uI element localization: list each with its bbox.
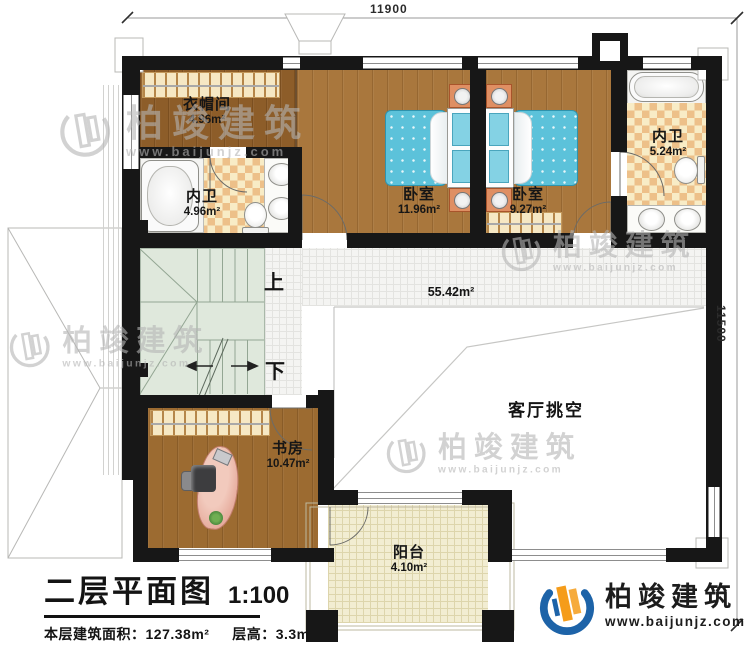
wall [271,548,334,562]
window [512,549,666,561]
partition-line [295,70,297,147]
room-area: 5.24m² [650,146,686,160]
wall-pier [140,363,148,377]
window-sill-hatch [103,85,120,475]
window [363,57,462,69]
title-row: 二层平面图 1:100 [44,566,364,611]
room-label-cloakroom: 衣帽间 4.96m² [183,96,231,128]
room-name: 卧室 [510,186,546,204]
window [643,57,691,69]
room-area: 4.96m² [184,206,220,220]
wall [140,395,272,408]
room-area: 10.47m² [267,458,310,472]
window [478,57,578,69]
wall [462,490,492,505]
floor-area-value: 127.38m² [146,626,210,642]
wall [306,395,334,408]
room-label-bath-right: 内卫 5.24m² [650,128,686,160]
wall-pier [140,220,148,234]
room-label-bath-left: 内卫 4.96m² [184,188,220,220]
title-block: 二层平面图 1:100 本层建筑面积：127.38m² 层高：3.3m [44,566,364,644]
room-label-living-void: 客厅挑空 [508,396,584,421]
room-area: 9.27m² [510,204,546,218]
window [708,487,720,537]
window [123,95,139,169]
room-label-balcony: 阳台 4.10m² [391,544,427,576]
room-name: 内卫 [650,128,686,146]
room-area: 4.10m² [391,562,427,576]
wall [140,147,210,158]
hall-area-label: 55.42m² [428,285,475,299]
title-underline [44,615,260,618]
brand-logo: 柏竣建筑 www.baijunjz.com [538,577,746,635]
wall [288,233,302,248]
window [283,57,300,69]
room-label-bedroom-right: 卧室 9.27m² [510,186,546,218]
wall [611,196,627,248]
room-name: 书房 [267,440,310,458]
stairs-break-line [199,338,228,397]
wall [318,490,358,505]
brand-url: www.baijunjz.com [605,615,746,629]
wall [133,398,148,562]
wall [470,56,486,233]
stairs-up-label: 上 [264,266,284,295]
wall [347,233,573,248]
room-name: 衣帽间 [183,96,231,114]
plan-scale: 1:100 [228,582,289,611]
room-name: 卧室 [398,186,440,204]
window [179,549,271,561]
wall [611,56,627,152]
dimension-right: 11500 [714,305,728,343]
dimension-top: 11900 [370,2,408,16]
floor-info: 本层建筑面积：127.38m² 层高：3.3m [44,624,364,644]
room-label-bedroom-left: 卧室 11.96m² [398,186,440,218]
balcony-door-window [358,492,462,504]
room-name: 阳台 [391,544,427,562]
room-label-study: 书房 10.47m² [267,440,310,472]
wall [122,233,302,248]
brand-logo-texts: 柏竣建筑 www.baijunjz.com [605,584,746,629]
stairs-treads [140,249,264,394]
chimney [592,33,628,69]
room-area: 11.96m² [398,204,440,218]
floor-area-label: 本层建筑面积： [44,626,146,642]
stairs-down-label: 下 [265,355,285,384]
room-name: 内卫 [184,188,220,206]
wall [666,548,722,562]
floor-height-label: 层高： [232,626,276,642]
wall [133,548,179,562]
balcony-pillar [482,610,514,642]
room-area: 4.96m² [183,114,231,128]
floor-plan: 衣帽间 4.96m² 内卫 4.96m² 卧室 11.96m² 卧室 9.27m… [0,0,750,648]
page-title: 二层平面图 [44,566,214,611]
brand-name: 柏竣建筑 [605,584,746,611]
brand-logo-icon [538,577,596,635]
floor-height-value: 3.3m [276,626,310,642]
